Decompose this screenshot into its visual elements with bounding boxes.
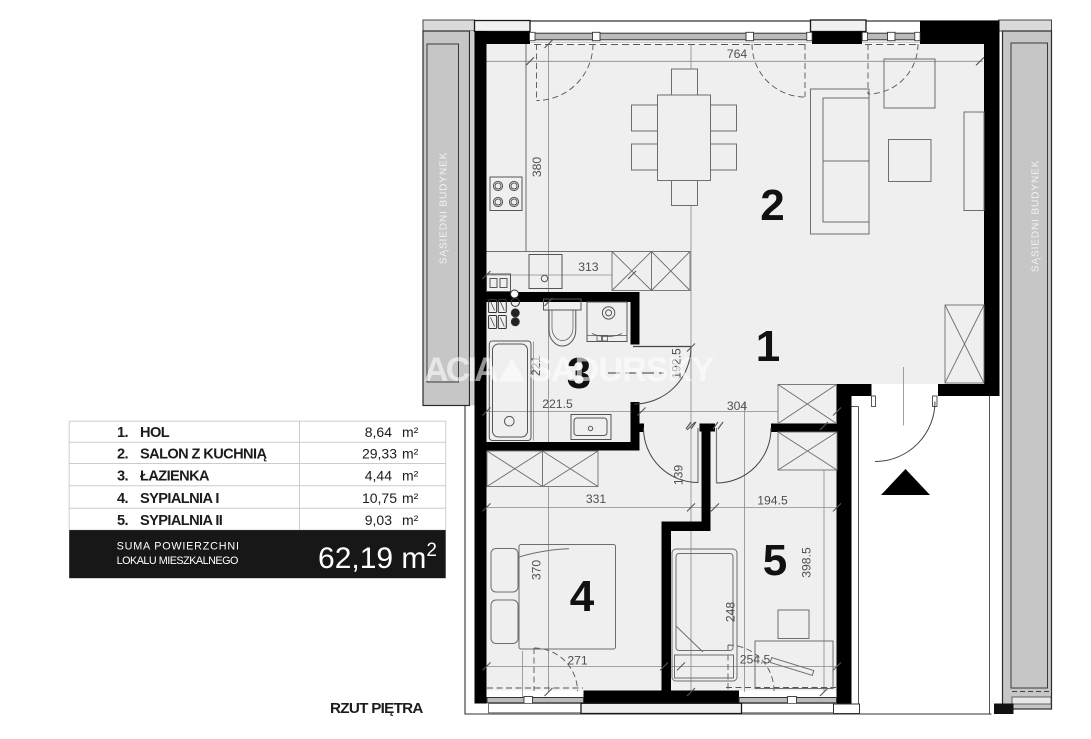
svg-text:1.: 1. [117,425,129,441]
svg-text:2.: 2. [117,447,129,463]
svg-text:5: 5 [763,536,787,585]
svg-text:313: 313 [578,260,599,274]
svg-text:m²: m² [402,490,419,506]
svg-text:304: 304 [727,399,748,413]
svg-text:4.: 4. [117,491,129,507]
svg-text:62,19 m2: 62,19 m2 [318,540,437,575]
svg-text:SADURSKY: SADURSKY [529,351,715,389]
svg-text:10,75: 10,75 [362,490,397,506]
svg-text:4: 4 [570,572,595,621]
svg-text:764: 764 [727,47,748,61]
svg-text:254.5: 254.5 [740,653,771,667]
svg-text:194.5: 194.5 [757,494,788,508]
svg-text:m²: m² [402,424,419,440]
svg-text:ACIA: ACIA [424,351,498,389]
svg-text:221.5: 221.5 [542,397,573,411]
svg-text:HOL: HOL [140,425,170,441]
svg-text:SYPIALNIA I: SYPIALNIA I [140,491,219,507]
svg-text:9,03: 9,03 [365,512,392,528]
svg-text:SUMA POWIERZCHNI: SUMA POWIERZCHNI [117,541,240,553]
svg-text:m²: m² [402,468,419,484]
svg-text:8,64: 8,64 [365,424,392,440]
svg-text:1: 1 [756,322,780,371]
svg-text:SALON Z KUCHNIĄ: SALON Z KUCHNIĄ [140,447,267,463]
svg-text:3.: 3. [117,469,129,485]
svg-text:29,33: 29,33 [362,446,397,462]
svg-text:SYPIALNIA II: SYPIALNIA II [140,513,223,529]
svg-text:398.5: 398.5 [800,547,814,578]
svg-text:m²: m² [402,512,419,528]
svg-text:ŁAZIENKA: ŁAZIENKA [140,469,210,485]
svg-text:RZUT PIĘTRA: RZUT PIĘTRA [330,700,423,717]
svg-text:271: 271 [567,654,588,668]
svg-text:SĄSIEDNI BUDYNEK: SĄSIEDNI BUDYNEK [439,152,450,264]
svg-text:LOKALU MIESZKALNEGO: LOKALU MIESZKALNEGO [117,555,238,567]
svg-text:370: 370 [530,560,544,581]
svg-text:380: 380 [530,157,544,178]
svg-text:2: 2 [760,181,784,230]
svg-text:4,44: 4,44 [365,468,392,484]
svg-text:331: 331 [586,492,607,506]
svg-text:248: 248 [724,602,738,623]
svg-text:m²: m² [402,446,419,462]
svg-text:SĄSIEDNI BUDYNEK: SĄSIEDNI BUDYNEK [1031,160,1042,272]
svg-text:5.: 5. [117,513,129,529]
svg-text:139: 139 [672,465,686,486]
